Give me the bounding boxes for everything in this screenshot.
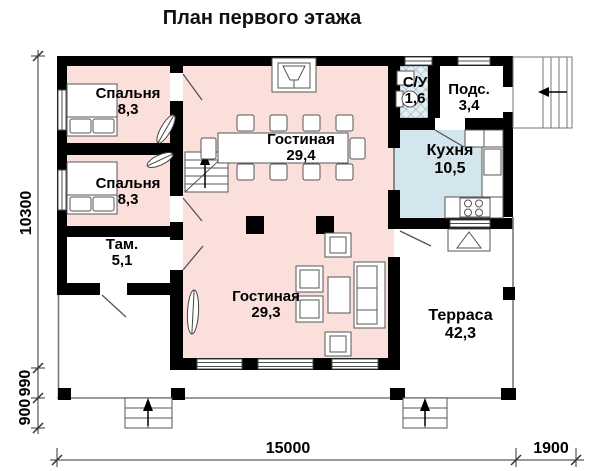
dim-width-entry: 1900 <box>511 440 591 458</box>
wall-inner-east-lower <box>388 257 400 368</box>
column <box>246 216 264 234</box>
room-label-pantry: Подс. 3,4 <box>419 82 519 114</box>
window-living-south-2 <box>258 359 313 369</box>
window-living-south-1 <box>197 359 242 369</box>
dim-height-seg-upper: 990 <box>17 368 35 398</box>
room-name: Спальня <box>78 176 178 192</box>
fireplace <box>272 58 316 92</box>
dining-chair <box>303 115 320 131</box>
room-label-kitchen: Кухня 10,5 <box>405 142 495 178</box>
wall-east <box>503 56 513 217</box>
room-name: Кухня <box>405 142 495 160</box>
room-name: Подс. <box>419 82 519 98</box>
room-area: 29,3 <box>216 305 316 321</box>
room-label-living-lower: Гостиная 29,3 <box>216 289 316 321</box>
room-name: Гостиная <box>216 289 316 305</box>
room-label-bedroom-1: Спальня 8,3 <box>78 86 178 118</box>
floor-plan: План первого этажа Спальня 8,3 Спальня 8… <box>0 0 600 471</box>
dining-chair <box>336 164 353 180</box>
dining-chair <box>303 164 320 180</box>
floor-plan-drawing <box>0 0 600 471</box>
dining-chair <box>201 138 216 159</box>
dim-width-main: 15000 <box>238 440 338 458</box>
window-living-south-3 <box>332 359 378 369</box>
dining-chair <box>350 138 365 159</box>
column <box>58 388 71 400</box>
room-name: Спальня <box>78 86 178 102</box>
column <box>171 388 185 400</box>
room-area: 3,4 <box>419 98 519 114</box>
porch-entry-steps <box>125 398 172 428</box>
room-label-vestibule: Там. 5,1 <box>72 237 172 269</box>
room-label-bedroom-2: Спальня 8,3 <box>78 176 178 208</box>
room-name: Терраса <box>408 307 513 325</box>
room-label-terrace: Терраса 42,3 <box>408 307 513 343</box>
dining-chair <box>336 115 353 131</box>
room-area: 5,1 <box>72 253 172 269</box>
window-bathroom-north <box>405 57 432 65</box>
window-bedroom-1 <box>58 90 66 130</box>
dim-height-total: 10300 <box>18 183 36 243</box>
dining-chair <box>237 164 254 180</box>
dining-chair <box>237 115 254 131</box>
room-area: 8,3 <box>78 192 178 208</box>
room-fill-porch <box>59 295 170 398</box>
room-area: 8,3 <box>78 102 178 118</box>
room-name: Там. <box>72 237 172 253</box>
dim-height-seg-lower: 900 <box>17 397 35 427</box>
terrace-entry-steps <box>403 398 447 428</box>
terrace-step-box <box>448 229 490 251</box>
column <box>501 388 516 400</box>
window-bedroom-2 <box>58 170 66 210</box>
column <box>316 216 334 234</box>
dining-chair <box>270 115 287 131</box>
side-entry-landing <box>513 57 572 128</box>
room-area: 42,3 <box>408 325 513 343</box>
window-kitchen-south <box>450 220 490 227</box>
coffee-table <box>328 277 350 313</box>
room-label-living-upper: Гостиная 29,4 <box>251 132 351 164</box>
column <box>503 287 515 300</box>
room-area: 29,4 <box>251 148 351 164</box>
page-title: План первого этажа <box>62 7 462 30</box>
room-name: Гостиная <box>251 132 351 148</box>
window-pantry-north <box>458 57 490 65</box>
dining-chair <box>270 164 287 180</box>
room-area: 10,5 <box>405 160 495 178</box>
